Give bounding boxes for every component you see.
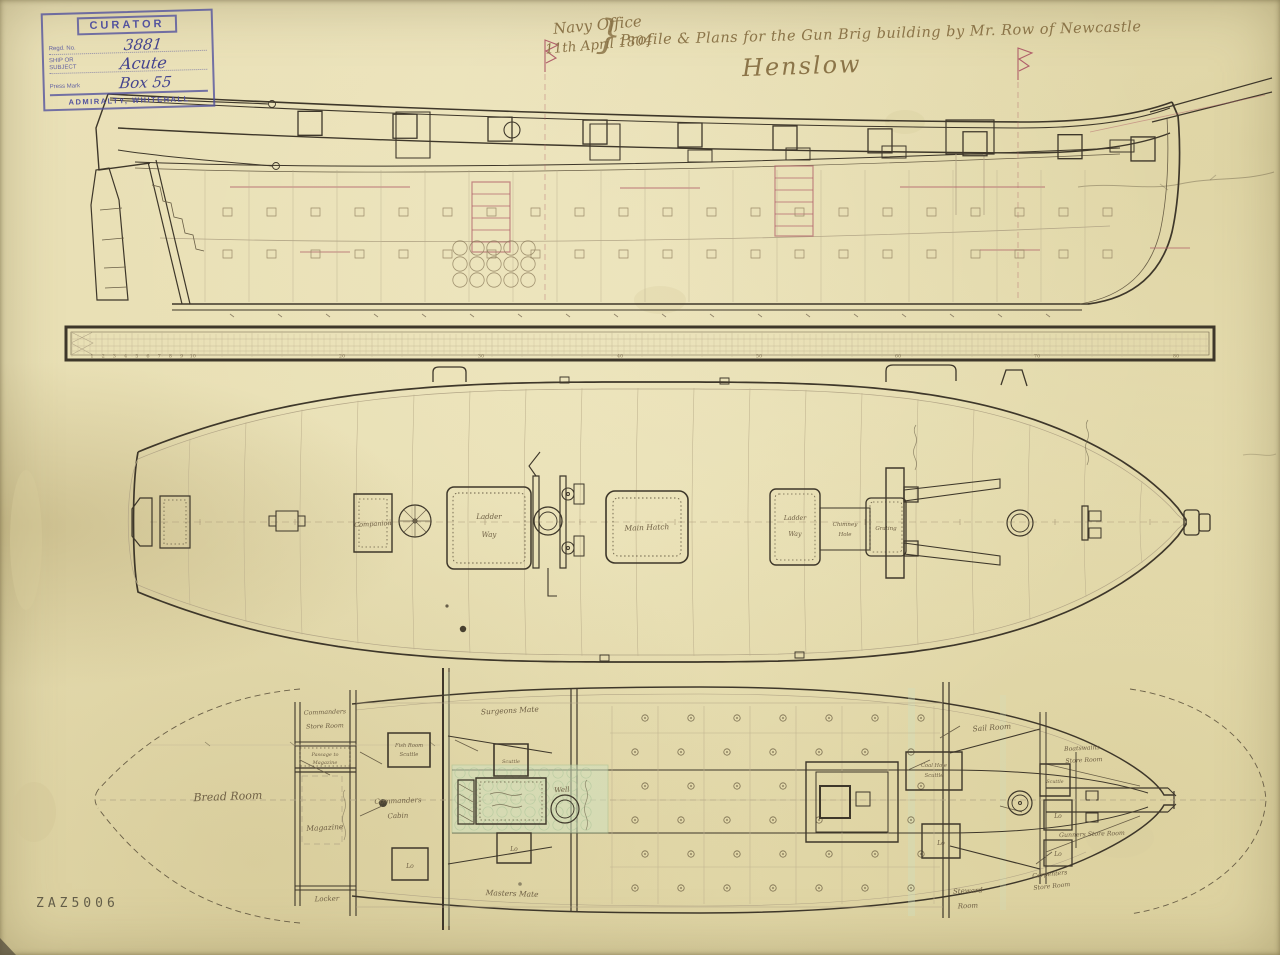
stern-rudder [91, 94, 204, 304]
masters-mate-label: Masters Mate [485, 888, 540, 899]
svg-text:60: 60 [895, 354, 901, 360]
svg-text:Way: Way [788, 531, 802, 538]
main-windlass [529, 452, 584, 596]
carpenters-store-label: Carpenters [1032, 869, 1068, 880]
svg-text:Lo: Lo [1053, 851, 1062, 858]
svg-text:Lo: Lo [405, 863, 414, 870]
svg-text:Fish Room: Fish Room [394, 743, 423, 749]
commanders-cabin-label: Commanders [374, 796, 422, 806]
svg-text:20: 20 [339, 354, 345, 360]
chimney-hole: Chimney Hole [820, 508, 870, 550]
lower-deck-plan: Well Fish Room Scuttle Lo Scuttle [95, 668, 1266, 930]
shot-locker: Well [452, 765, 608, 833]
mast-pennant-fore [1018, 48, 1032, 300]
bow-bitts [1082, 506, 1101, 540]
companion-label: Companion [354, 519, 392, 529]
aft-locker-box-2: Lo [497, 833, 531, 863]
fore-ladder-way: Ladder Way [770, 489, 820, 565]
svg-text:5: 5 [135, 354, 138, 360]
commanders-store-label: Commanders [304, 708, 347, 717]
companion-hatch: Companion [354, 494, 392, 552]
ship-or-subject-label: SHIP ORSUBJECT [49, 57, 77, 73]
channel-wales [433, 365, 1027, 661]
paper-stains [0, 110, 1276, 955]
stem-curve [1088, 102, 1180, 304]
ladder-way-hatch: Ladder Way [447, 487, 531, 569]
svg-text:4: 4 [124, 354, 127, 360]
svg-text:Scuttle: Scuttle [1046, 779, 1063, 785]
well-label: Well [554, 786, 570, 795]
svg-text:70: 70 [1034, 354, 1040, 360]
brace-mark: } [595, 11, 623, 58]
svg-text:9: 9 [180, 354, 183, 360]
ladder-way-label: Ladder [475, 513, 502, 521]
scanned-ship-plan: 1234567891020304050607080 Compa [0, 0, 1280, 955]
mainmast-step [806, 762, 898, 842]
press-mark-value: Box 55 [83, 74, 208, 92]
bread-room-label: Bread Room [192, 789, 262, 804]
regd-no-value: 3881 [79, 36, 208, 54]
svg-text:2: 2 [102, 354, 105, 360]
steering-wheel [399, 505, 431, 537]
aft-locker-box: Lo [392, 848, 428, 880]
scale-bar: 1234567891020304050607080 [66, 327, 1214, 360]
aft-bitts [269, 511, 305, 531]
fish-room-scuttle-box: Fish Room Scuttle [388, 733, 430, 767]
deck-line [135, 148, 1120, 166]
svg-text:Store Room: Store Room [306, 722, 344, 730]
svg-text:Store Room: Store Room [1033, 881, 1071, 892]
script-annotation [914, 425, 917, 470]
mast-pennant-main [545, 40, 558, 300]
svg-text:Scuttle: Scuttle [400, 752, 419, 758]
surgeons-mate-label: Surgeons Mate [481, 704, 540, 716]
svg-text:6: 6 [146, 354, 149, 360]
main-hatch: Main Hatch [606, 491, 688, 563]
svg-text:Coal Hole: Coal Hole [921, 763, 947, 769]
boatswains-store-label: Boatswains [1063, 744, 1100, 753]
main-hatch-label: Main Hatch [623, 522, 669, 533]
svg-text:Magazine: Magazine [312, 760, 338, 766]
svg-text:Scuttle: Scuttle [502, 759, 520, 765]
profile-procedural-detail [205, 111, 1155, 317]
svg-text:1: 1 [90, 354, 93, 360]
svg-text:Lo: Lo [936, 840, 945, 847]
magazine-label: Magazine [305, 822, 344, 833]
svg-text:40: 40 [617, 354, 623, 360]
curator-stamp-title: CURATOR [77, 15, 177, 36]
svg-text:30: 30 [478, 354, 484, 360]
svg-text:Lo: Lo [509, 846, 518, 853]
platform-edges [100, 703, 1265, 907]
ship-name-value: Acute [80, 55, 208, 73]
svg-text:50: 50 [756, 354, 762, 360]
catalog-number: ZAZ5006 [36, 896, 119, 911]
svg-text:Lo: Lo [1053, 813, 1062, 820]
hold-stowage-grid [610, 706, 940, 904]
passage-label: Passage to [310, 752, 338, 758]
svg-text:7: 7 [158, 354, 161, 360]
bowsprit-heel [1184, 510, 1210, 535]
locker-label: Locker [314, 895, 340, 904]
foremast-step [1008, 791, 1032, 815]
svg-text:Room: Room [957, 901, 979, 910]
svg-text:Cabin: Cabin [387, 812, 409, 821]
svg-text:3: 3 [113, 354, 116, 360]
plan-drawing: 1234567891020304050607080 Compa [0, 0, 1280, 955]
regd-no-label: Regd. No. [49, 45, 76, 54]
upper-deck-plan: Companion Ladder Way [128, 365, 1210, 662]
rudder-head-casing [132, 498, 152, 546]
profile-deck-structures [396, 112, 1134, 215]
svg-text:80: 80 [1173, 354, 1179, 360]
steward-room-label: Steward [953, 886, 984, 896]
fore-ladder-way-label: Ladder [783, 515, 807, 522]
curator-stamp: CURATOR Regd. No. 3881 SHIP ORSUBJECT Ac… [41, 9, 216, 112]
chimney-label: Chimney [833, 522, 859, 528]
svg-text:Way: Way [482, 531, 498, 539]
port-sill-line [118, 128, 1170, 153]
surveyor-signature: Henslow [742, 50, 862, 82]
foremast-partners [1007, 510, 1033, 536]
svg-text:Store Room: Store Room [1065, 756, 1102, 765]
svg-text:Scuttle: Scuttle [925, 773, 944, 779]
script-annotation [343, 790, 346, 840]
svg-text:10: 10 [190, 354, 196, 360]
fore-windlass [886, 468, 1000, 578]
profile-view [91, 40, 1272, 317]
bowsprit [1090, 78, 1272, 132]
admiralty-stamp-footer: ADMIRALTY, WHITEHALL [50, 90, 208, 109]
press-mark-label: Press Mark [50, 83, 81, 92]
svg-text:8: 8 [169, 354, 172, 360]
svg-text:Hole: Hole [837, 532, 852, 538]
lower-deck-line [160, 226, 1110, 242]
